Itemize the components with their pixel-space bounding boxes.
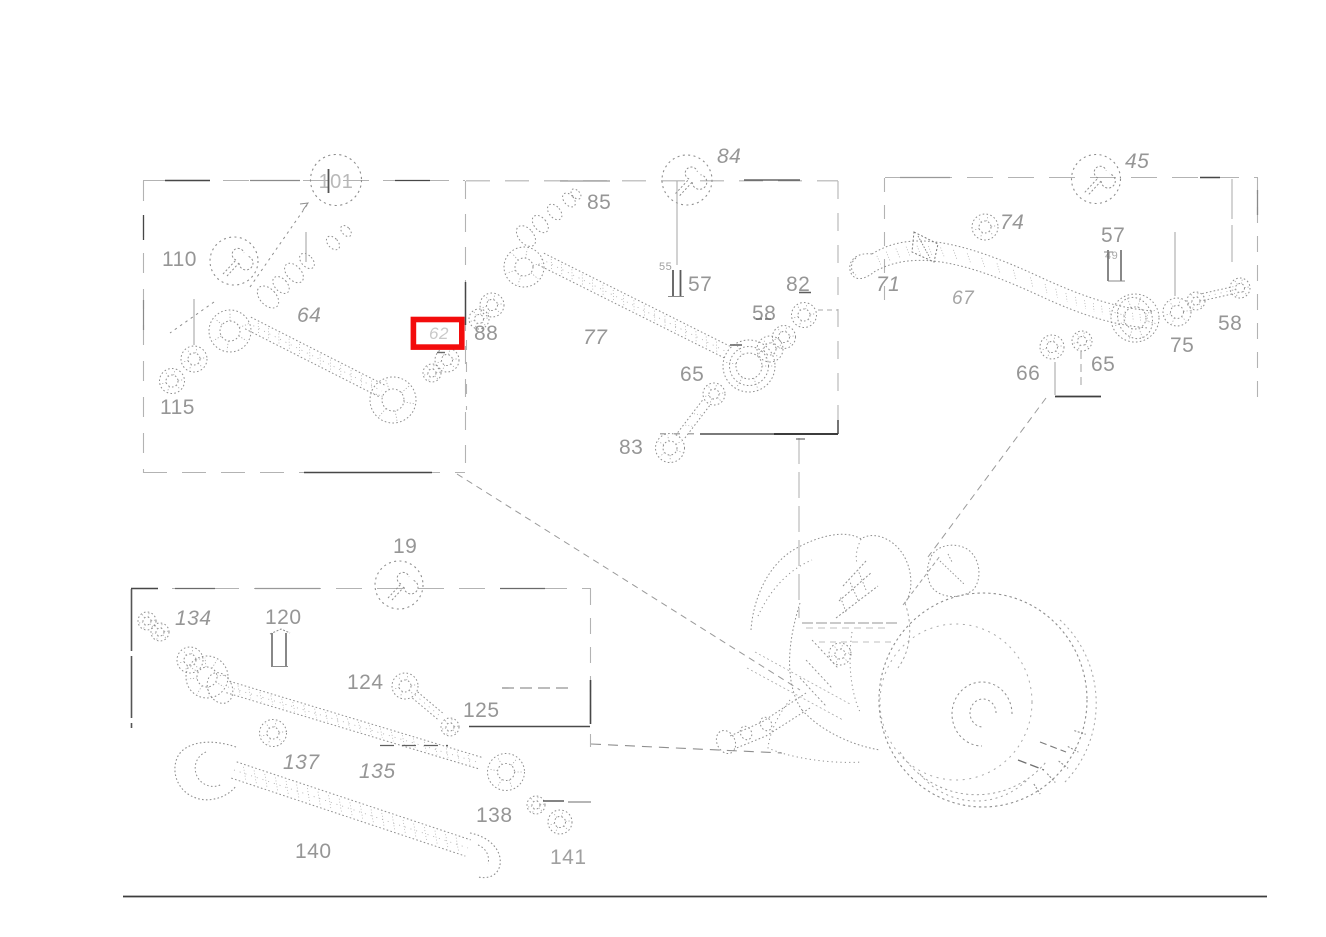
svg-text:115: 115 [160, 396, 195, 419]
svg-text:74: 74 [1000, 211, 1024, 234]
svg-text:58: 58 [1218, 312, 1242, 335]
svg-text:65: 65 [1091, 353, 1115, 376]
svg-text:88: 88 [474, 322, 498, 345]
svg-text:57: 57 [1101, 224, 1125, 247]
svg-text:101: 101 [319, 171, 354, 193]
svg-text:65: 65 [680, 363, 704, 386]
svg-text:85: 85 [587, 191, 611, 214]
svg-text:45: 45 [1125, 150, 1149, 173]
svg-text:140: 140 [295, 840, 332, 863]
svg-text:62: 62 [429, 324, 449, 343]
svg-text:58: 58 [752, 302, 776, 325]
svg-text:134: 134 [175, 607, 212, 630]
svg-text:137: 137 [283, 751, 320, 774]
svg-text:125: 125 [463, 699, 500, 722]
svg-text:124: 124 [347, 671, 384, 694]
svg-text:19: 19 [393, 535, 417, 558]
svg-text:77: 77 [583, 326, 608, 349]
svg-text:66: 66 [1016, 362, 1040, 385]
svg-text:110: 110 [162, 248, 197, 271]
svg-text:71: 71 [876, 273, 900, 296]
svg-text:138: 138 [476, 804, 513, 827]
svg-text:83: 83 [619, 436, 643, 459]
svg-text:67: 67 [952, 288, 975, 309]
svg-text:57: 57 [688, 273, 712, 296]
svg-text:135: 135 [359, 760, 396, 783]
svg-text:55: 55 [659, 261, 672, 273]
svg-text:141: 141 [550, 846, 587, 869]
svg-text:120: 120 [265, 606, 302, 629]
svg-text:64: 64 [297, 304, 321, 327]
svg-text:84: 84 [717, 145, 741, 168]
svg-text:75: 75 [1170, 334, 1194, 357]
